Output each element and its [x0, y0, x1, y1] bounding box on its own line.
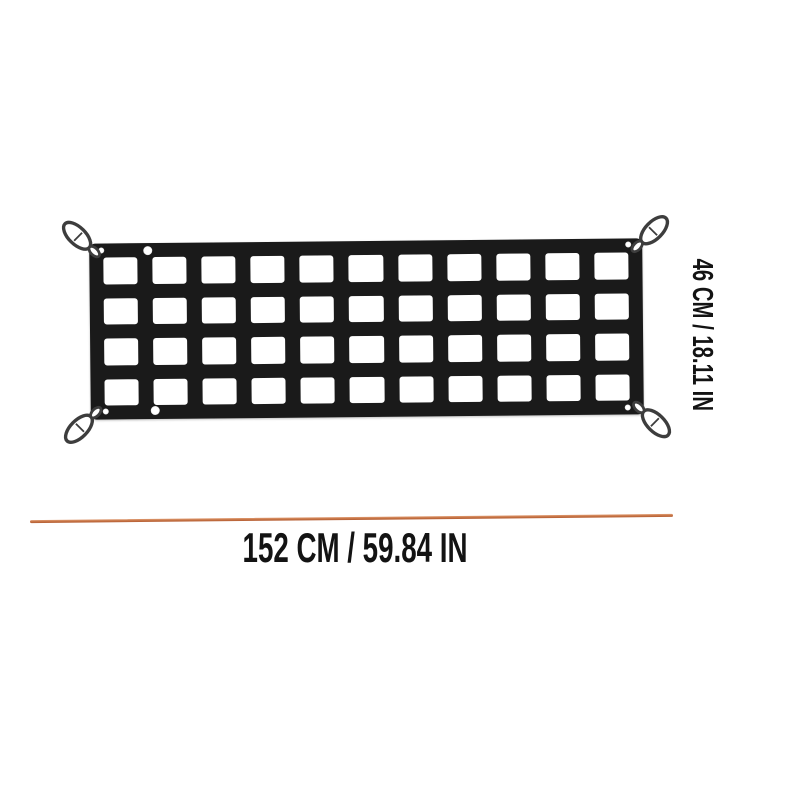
net-cell	[496, 253, 530, 280]
net-cell	[448, 335, 482, 362]
net-cell	[301, 377, 335, 404]
net-cell	[201, 256, 235, 283]
net-webbing-grid	[89, 238, 644, 419]
height-dimension-text: 46 CM / 18.11 IN	[687, 259, 717, 411]
width-dimension-line	[30, 514, 673, 523]
net-cell	[202, 337, 236, 364]
net-cell	[251, 256, 285, 283]
net-cell	[447, 294, 481, 321]
net-cell	[300, 336, 334, 363]
width-dimension-text: 152 CM / 59.84 IN	[243, 524, 468, 571]
carabiner-hook-icon	[61, 398, 109, 446]
net-cell	[398, 295, 432, 322]
net-cell	[104, 338, 138, 365]
net-cell	[497, 375, 531, 402]
net-cell	[350, 336, 384, 363]
net-cell	[545, 253, 579, 280]
carabiner-hook-icon	[626, 393, 674, 441]
net-cell	[399, 376, 433, 403]
net-cell	[546, 374, 580, 401]
cargo-net	[89, 238, 644, 419]
net-cell	[349, 295, 383, 322]
net-cell	[448, 375, 482, 402]
width-dimension-label: 152 CM / 59.84 IN	[223, 527, 487, 569]
net-cell	[154, 378, 188, 405]
grommet	[151, 406, 160, 415]
net-cell	[153, 297, 187, 324]
net-cell	[595, 333, 629, 360]
net-cell	[349, 255, 383, 282]
net-cell	[202, 297, 236, 324]
net-cell	[496, 294, 530, 321]
net-cell	[399, 335, 433, 362]
carabiner-hook-icon	[59, 217, 107, 265]
net-cell	[546, 334, 580, 361]
net-cell	[545, 293, 579, 320]
net-cell	[300, 255, 334, 282]
net-cell	[595, 374, 629, 401]
net-cell	[497, 334, 531, 361]
net-cell	[252, 377, 286, 404]
net-cell	[447, 254, 481, 281]
net-cell	[103, 257, 137, 284]
net-cell	[152, 257, 186, 284]
net-cell	[104, 379, 138, 406]
net-cell	[398, 254, 432, 281]
net-cell	[104, 298, 138, 325]
carabiner-hook-icon	[624, 212, 672, 260]
grommet	[143, 246, 152, 255]
net-cell	[251, 296, 285, 323]
net-cell	[203, 378, 237, 405]
net-cell	[153, 338, 187, 365]
net-cell	[350, 376, 384, 403]
height-dimension-label: 46 CM / 18.11 IN	[687, 185, 717, 485]
net-cell	[251, 337, 285, 364]
product-image: 152 CM / 59.84 IN 46 CM / 18.11 IN	[0, 0, 800, 800]
net-cell	[300, 296, 334, 323]
net-cell	[595, 293, 629, 320]
